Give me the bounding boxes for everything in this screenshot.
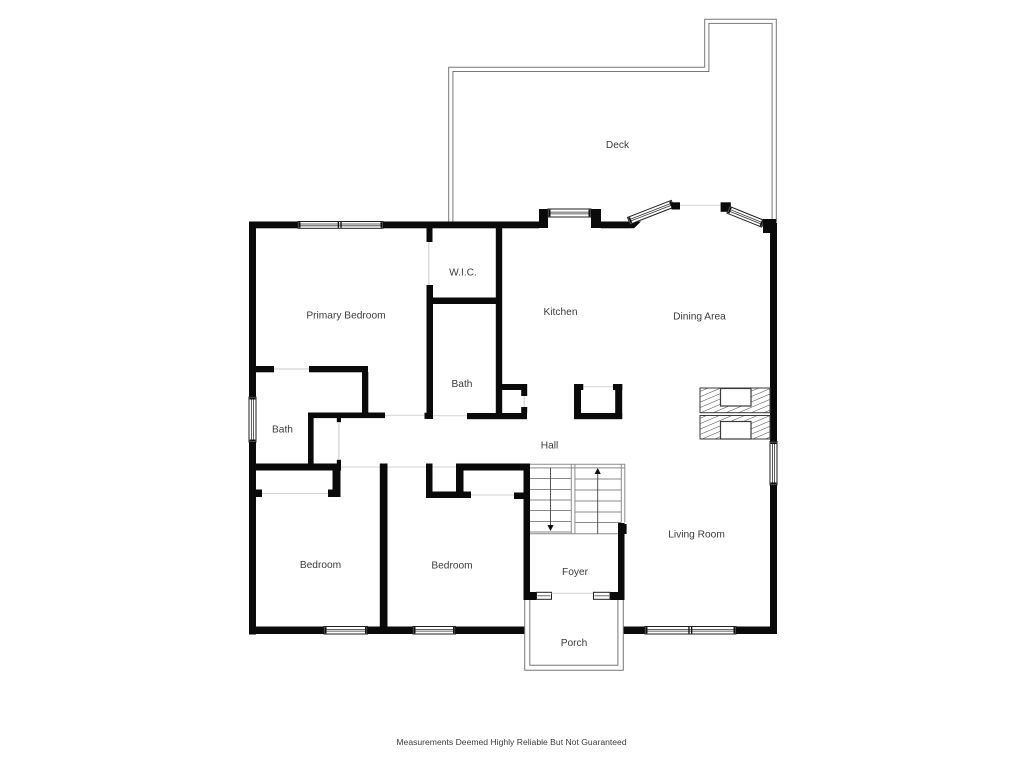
svg-text:Bath: Bath [452, 379, 473, 390]
svg-text:Porch: Porch [561, 638, 588, 649]
svg-text:Hall: Hall [541, 441, 559, 452]
svg-text:Bedroom: Bedroom [431, 561, 472, 572]
svg-text:Dining Area: Dining Area [673, 312, 726, 323]
svg-text:Living Room: Living Room [668, 530, 725, 541]
svg-text:Bath: Bath [272, 425, 293, 436]
svg-text:Measurements Deemed Highly Rel: Measurements Deemed Highly Reliable But … [396, 737, 626, 747]
svg-text:Primary Bedroom: Primary Bedroom [306, 311, 385, 322]
svg-text:Bedroom: Bedroom [300, 560, 341, 571]
svg-text:Foyer: Foyer [562, 567, 589, 578]
svg-text:Deck: Deck [606, 140, 630, 151]
svg-text:Kitchen: Kitchen [544, 307, 578, 318]
svg-text:W.I.C.: W.I.C. [449, 268, 477, 279]
